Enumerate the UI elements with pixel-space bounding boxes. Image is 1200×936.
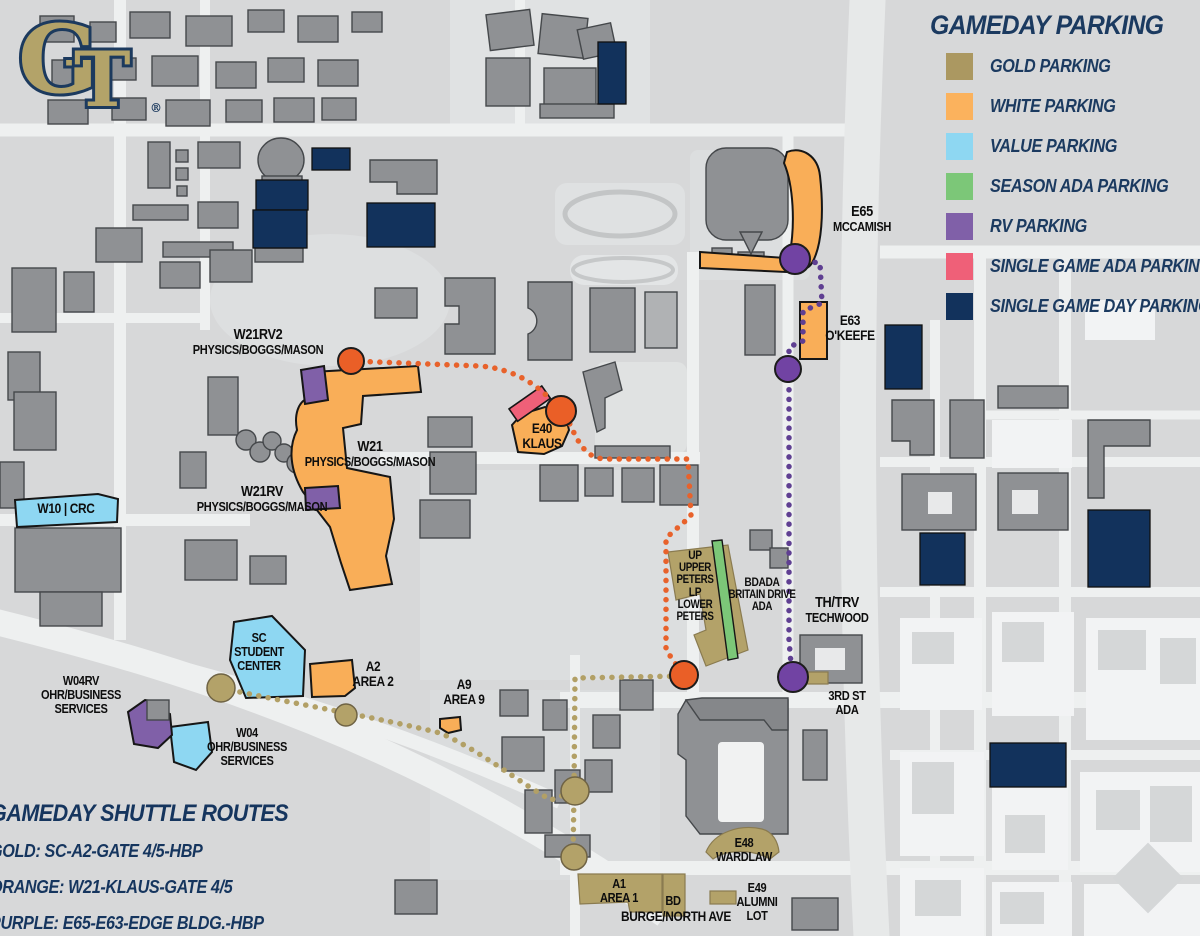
legend: GAMEDAY PARKING GOLD PARKING WHITE PARKI… <box>930 10 1200 333</box>
label-w10: W10 | CRC <box>37 501 94 516</box>
white-parking-swatch <box>946 93 973 120</box>
lot-a9 <box>440 717 461 733</box>
shuttle-routes-panel: GAMEDAY SHUTTLE ROUTES GOLD: SC-A2-GATE … <box>0 800 321 936</box>
legend-row-white: WHITE PARKING <box>930 93 1200 120</box>
lot-3rdst <box>806 672 828 684</box>
stop-a2 <box>335 704 357 726</box>
legend-row-gold: GOLD PARKING <box>930 53 1200 80</box>
stop-e65 <box>780 244 810 274</box>
legend-row-single-day: SINGLE GAME DAY PARKING <box>930 293 1200 320</box>
stop-e63 <box>775 356 801 382</box>
label-e49: E49ALUMNILOT <box>737 881 778 922</box>
label-w21rv: W21RVPHYSICS/BOGGS/MASON <box>197 484 327 514</box>
gt-logo-registered: ® <box>150 101 162 115</box>
legend-row-single-ada: SINGLE GAME ADA PARKING <box>930 253 1200 280</box>
stop-w21 <box>338 348 364 374</box>
lot-w21rv2 <box>301 366 328 404</box>
lot-e49 <box>710 891 736 904</box>
label-e65: E65MCCAMISH <box>833 204 891 234</box>
label-w04rv: W04RVOHR/BUSINESSSERVICES <box>41 674 121 715</box>
label-e40: E40KLAUS <box>522 421 561 451</box>
stop-sc <box>207 674 235 702</box>
label-w21: W21PHYSICS/BOGGS/MASON <box>305 439 435 469</box>
shuttle-route-orange-label: ORANGE: W21-KLAUS-GATE 4/5 <box>0 877 288 898</box>
label-3rdst: 3RD STADA <box>828 689 865 717</box>
label-bd: BD <box>665 894 680 908</box>
value-parking-swatch <box>946 133 973 160</box>
rv-parking-swatch <box>946 213 973 240</box>
gold-parking-swatch <box>946 53 973 80</box>
stop-gold-mid <box>561 777 589 805</box>
shuttle-route-gold-label: GOLD: SC-A2-GATE 4/5-HBP <box>0 841 288 862</box>
gameday-parking-map: G T ® GAMEDAY PARKING GOLD PARKING WHITE… <box>0 0 1200 936</box>
label-e48: E48WARDLAW <box>716 836 772 864</box>
lot-w04 <box>170 722 212 770</box>
single-game-day-swatch <box>946 293 973 320</box>
legend-row-rv: RV PARKING <box>930 213 1200 240</box>
stop-gold-south <box>561 844 587 870</box>
label-w04: W04OHR/BUSINESSSERVICES <box>207 726 287 767</box>
label-bdada: BDADABRITAIN DRIVEADA <box>728 576 795 613</box>
legend-row-value: VALUE PARKING <box>930 133 1200 160</box>
lot-a2 <box>310 660 355 697</box>
label-sc: SCSTUDENTCENTER <box>234 631 284 672</box>
label-a9: A9AREA 9 <box>443 677 484 707</box>
label-burge: BURGE/NORTH AVE <box>621 909 731 924</box>
label-a1: A1AREA 1 <box>600 877 638 905</box>
single-game-ada-swatch <box>946 253 973 280</box>
w04rv-building <box>147 700 169 720</box>
stop-orange-south <box>670 661 698 689</box>
label-thtrv: TH/TRVTECHWOOD <box>806 595 869 625</box>
shuttle-route-purple-label: PURPLE: E65-E63-EDGE BLDG.-HBP <box>0 913 288 934</box>
label-e63: E63O'KEEFE <box>825 313 874 343</box>
season-ada-swatch <box>946 173 973 200</box>
label-peters: UPUPPER PETERSLP LOWERPETERS <box>676 549 713 623</box>
shuttle-routes-title: GAMEDAY SHUTTLE ROUTES <box>0 800 288 828</box>
gt-logo-t: T <box>74 35 131 116</box>
stop-techwood <box>778 662 808 692</box>
label-w21rv2: W21RV2PHYSICS/BOGGS/MASON <box>193 327 323 357</box>
label-a2: A2AREA 2 <box>352 659 393 689</box>
legend-row-season-ada: SEASON ADA PARKING <box>930 173 1200 200</box>
legend-title: GAMEDAY PARKING <box>930 10 1178 41</box>
